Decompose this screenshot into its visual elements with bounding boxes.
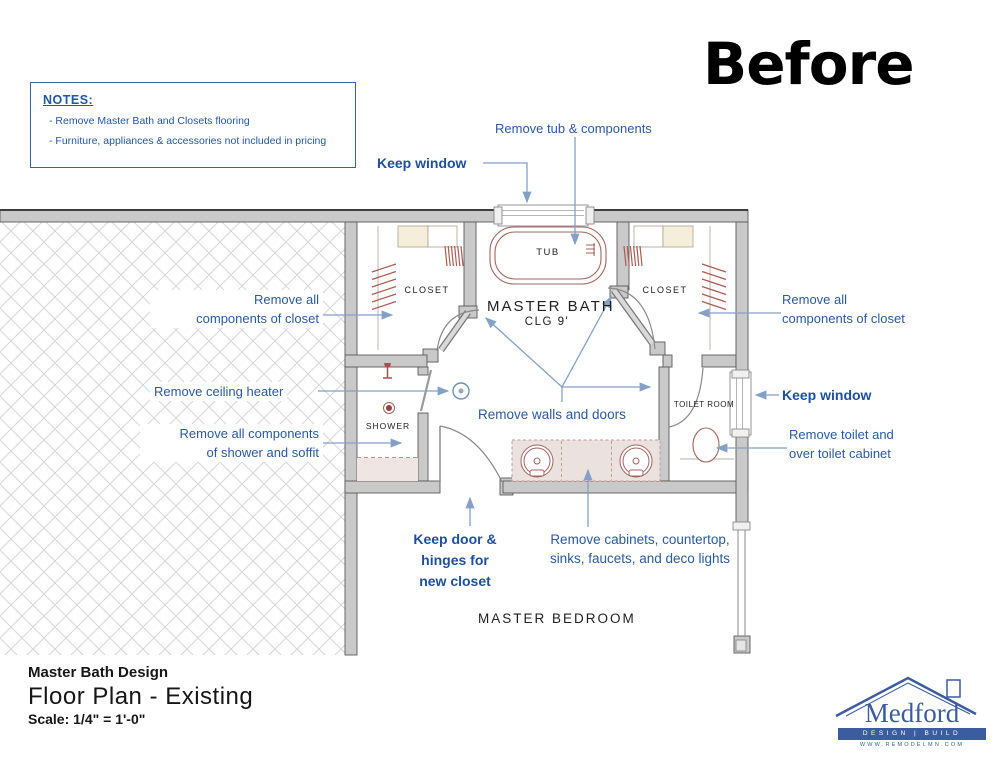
title-scale: Scale: 1/4" = 1'-0"	[28, 711, 145, 727]
room-label-toilet-room: TOILET ROOM	[670, 400, 738, 409]
room-label-closet-right: CLOSET	[640, 285, 690, 295]
vanity	[512, 440, 660, 481]
arrow-walls-1	[486, 318, 562, 387]
ceiling-heater-icon	[453, 383, 469, 399]
callout-remove-closet-left: Remove all components of closet	[150, 290, 323, 328]
callout-remove-closet-right: Remove all components of closet	[782, 290, 905, 328]
room-label-master-bedroom: MASTER BEDROOM	[478, 611, 618, 626]
notes-heading: NOTES:	[43, 93, 355, 107]
logo-name: Medford	[838, 698, 986, 729]
notes-box: NOTES: - Remove Master Bath and Closets …	[30, 82, 356, 168]
floor-plan-page: Before NOTES: - Remove Master Bath and C…	[0, 0, 1000, 770]
callout-remove-toilet: Remove toilet and over toilet cabinet	[789, 425, 894, 463]
room-label-master-bath: MASTER BATH	[487, 298, 607, 315]
room-label-shower: SHOWER	[361, 421, 415, 431]
callout-remove-shower: Remove all components of shower and soff…	[140, 424, 323, 462]
title-project: Master Bath Design	[28, 664, 168, 681]
title-sheet: Floor Plan - Existing	[28, 683, 253, 711]
room-label-tub: TUB	[532, 247, 564, 258]
room-label-closet-left: CLOSET	[402, 285, 452, 295]
callout-remove-cabinets: Remove cabinets, countertop, sinks, fauc…	[530, 530, 750, 568]
room-label-ceiling: CLG 9'	[517, 316, 577, 328]
arrow-keep-window-top	[483, 163, 527, 202]
toilet	[680, 428, 734, 462]
callout-remove-walls: Remove walls and doors	[478, 405, 626, 424]
callout-remove-tub: Remove tub & components	[495, 119, 652, 138]
notes-item: - Remove Master Bath and Closets floorin…	[49, 115, 355, 127]
notes-item: - Furniture, appliances & accessories no…	[49, 135, 355, 147]
callout-keep-window-right: Keep window	[782, 386, 871, 405]
callout-remove-heater: Remove ceiling heater	[150, 382, 287, 401]
callout-keep-window-top: Keep window	[377, 154, 466, 173]
before-title: Before	[703, 30, 914, 98]
soffit	[357, 458, 418, 481]
logo-url: WWW.REMODELMN.COM	[838, 742, 986, 748]
callout-keep-door: Keep door & hinges for new closet	[403, 529, 507, 592]
logo-tagline: DESIGN | BUILD	[838, 728, 986, 740]
